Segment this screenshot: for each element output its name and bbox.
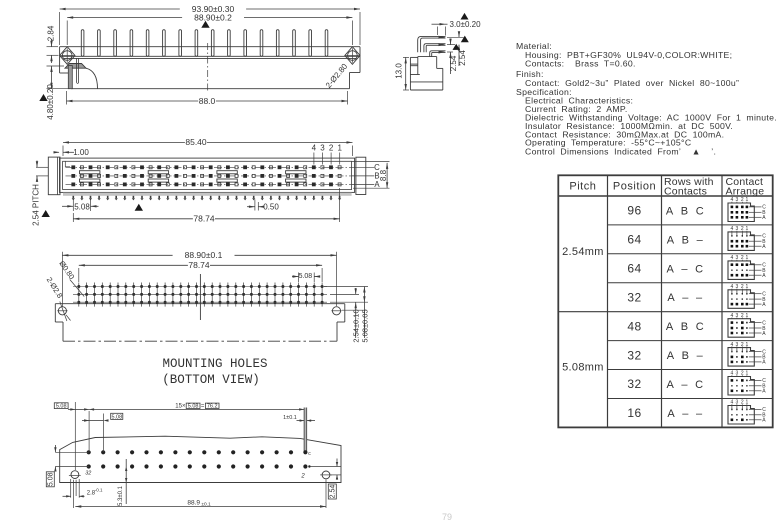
- svg-text:A: A: [762, 360, 766, 366]
- svg-text:64: 64: [627, 262, 641, 276]
- svg-text:4: 4: [312, 144, 317, 153]
- svg-text:64: 64: [627, 233, 641, 247]
- svg-text:A – C: A – C: [666, 379, 703, 391]
- svg-text:5.08: 5.08: [56, 404, 67, 410]
- svg-text:5.08mm: 5.08mm: [562, 362, 604, 374]
- svg-text:5.08: 5.08: [74, 202, 90, 211]
- svg-text:5.08: 5.08: [111, 414, 122, 420]
- svg-text:Ø0.80: Ø0.80: [57, 259, 76, 281]
- svg-text:Control Dimensions Indicated F: Control Dimensions Indicated From’ ▲ ’.: [525, 147, 716, 157]
- svg-text:96: 96: [627, 204, 641, 218]
- svg-text:4.80±0.20: 4.80±0.20: [46, 84, 55, 120]
- svg-text:A – –: A – –: [667, 292, 703, 304]
- svg-text:A: A: [762, 215, 766, 221]
- svg-text:2.54mm: 2.54mm: [562, 246, 604, 258]
- svg-text:2.54: 2.54: [449, 55, 458, 71]
- svg-text:79: 79: [442, 512, 452, 520]
- svg-text:(BOTTOM VIEW): (BOTTOM VIEW): [162, 373, 260, 387]
- svg-text:32: 32: [627, 348, 641, 362]
- svg-text:2-Ø2.80: 2-Ø2.80: [324, 62, 350, 90]
- svg-text:Contacts: Brass T=0.60.: Contacts: Brass T=0.60.: [525, 59, 636, 69]
- svg-text:5.08: 5.08: [48, 472, 55, 486]
- svg-text:A: A: [762, 244, 766, 250]
- svg-text:2: 2: [300, 474, 305, 480]
- svg-text:2: 2: [329, 144, 334, 153]
- svg-text:2.54±0.10: 2.54±0.10: [352, 309, 361, 342]
- svg-text:Arrange: Arrange: [726, 186, 765, 198]
- svg-text:1.00: 1.00: [73, 148, 89, 157]
- svg-text:A – C: A – C: [666, 263, 703, 275]
- svg-text:A: A: [762, 418, 766, 424]
- svg-text:2.54 PITCH: 2.54 PITCH: [32, 184, 41, 226]
- svg-text:3.0±0.20: 3.0±0.20: [450, 20, 482, 29]
- svg-text:88.0: 88.0: [199, 96, 216, 106]
- svg-text:A B C: A B C: [666, 206, 704, 218]
- svg-text:1: 1: [337, 144, 342, 153]
- svg-text:5.08±0.05: 5.08±0.05: [361, 309, 370, 342]
- svg-text:85.40: 85.40: [185, 137, 207, 147]
- svg-text:48: 48: [627, 319, 641, 333]
- svg-text:1±0.1: 1±0.1: [283, 415, 297, 421]
- svg-text:c: c: [308, 451, 311, 457]
- svg-text:Pitch: Pitch: [569, 181, 596, 193]
- svg-text:±0.1: ±0.1: [201, 502, 211, 508]
- svg-text:A B –: A B –: [667, 350, 704, 362]
- svg-text:78.74: 78.74: [188, 260, 210, 270]
- svg-text:Position: Position: [613, 181, 656, 193]
- svg-text:A B –: A B –: [667, 234, 704, 246]
- svg-text:88.90±0.2: 88.90±0.2: [194, 12, 232, 22]
- svg-text:5.08: 5.08: [188, 404, 199, 410]
- svg-text:8.8: 8.8: [379, 169, 388, 181]
- svg-text:A – –: A – –: [667, 408, 703, 420]
- svg-text:32: 32: [85, 471, 91, 477]
- svg-text:5.08: 5.08: [299, 273, 313, 280]
- svg-text:A: A: [762, 331, 766, 337]
- svg-text:32: 32: [627, 377, 641, 391]
- svg-text:=: =: [201, 404, 205, 410]
- svg-text:2.84: 2.84: [46, 25, 55, 41]
- svg-text:88.90±0.1: 88.90±0.1: [185, 250, 223, 260]
- svg-text:32: 32: [627, 290, 641, 304]
- svg-text:16: 16: [627, 406, 641, 420]
- svg-text:A: A: [762, 302, 766, 308]
- svg-text:78.74: 78.74: [193, 214, 215, 224]
- svg-text:A: A: [762, 389, 766, 395]
- svg-text:2.54: 2.54: [330, 485, 337, 499]
- svg-text:0.50: 0.50: [263, 203, 279, 212]
- svg-text:A: A: [762, 273, 766, 279]
- svg-text:3: 3: [320, 144, 325, 153]
- svg-text:2-Ø2.8: 2-Ø2.8: [45, 276, 65, 300]
- svg-text:2.54: 2.54: [458, 50, 467, 66]
- svg-text:15×: 15×: [175, 404, 186, 410]
- svg-text:5.3±0.1: 5.3±0.1: [118, 485, 124, 506]
- svg-text:-0.1: -0.1: [95, 488, 103, 493]
- svg-text:Contacts: Contacts: [664, 186, 707, 198]
- svg-text:88.9: 88.9: [187, 500, 200, 507]
- svg-text:MOUNTING HOLES: MOUNTING HOLES: [162, 357, 267, 371]
- svg-text:76.2: 76.2: [207, 404, 218, 410]
- svg-text:A B C: A B C: [666, 321, 704, 333]
- svg-text:13.0: 13.0: [395, 63, 404, 79]
